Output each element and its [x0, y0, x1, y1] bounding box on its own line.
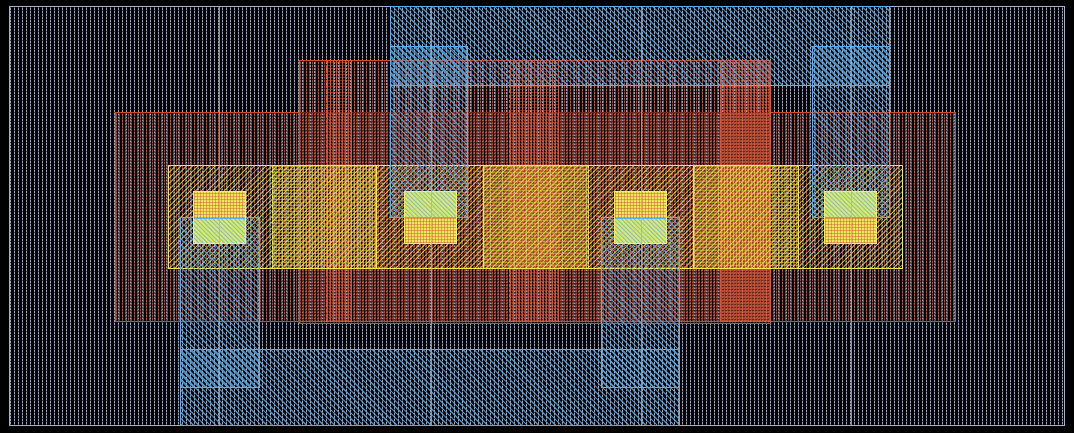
tile-grid-line-4: [851, 6, 852, 426]
gate-active-overlap-1[interactable]: [272, 165, 377, 269]
gate-active-overlap-3[interactable]: [693, 165, 799, 269]
gate-active-overlap-2[interactable]: [483, 165, 589, 269]
tile-grid-line-3: [641, 6, 642, 426]
tile-grid-line-1: [219, 6, 220, 426]
layout-canvas[interactable]: [0, 0, 1074, 433]
tile-grid-line-2: [431, 6, 432, 426]
